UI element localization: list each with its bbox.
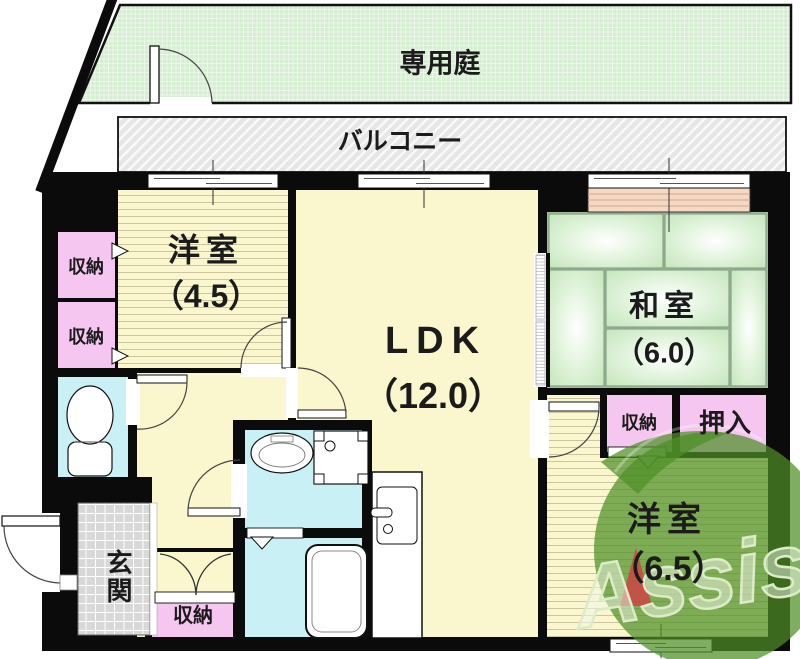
entrance-wall bbox=[58, 477, 152, 505]
washing-machine-pan bbox=[314, 431, 368, 484]
closet-upper-left-2-label: 収納 bbox=[68, 328, 104, 346]
western-room-large-size: （6.5） bbox=[610, 552, 725, 586]
western-room-small-size: （4.5） bbox=[152, 280, 261, 312]
bathtub bbox=[306, 545, 367, 638]
toilet-fixture bbox=[67, 386, 113, 476]
entrance-step bbox=[150, 503, 157, 635]
ldk-japanese-room-sliding-door bbox=[534, 253, 550, 387]
ldk-label: LDK bbox=[385, 322, 487, 360]
oshiire-label: 押入 bbox=[699, 410, 751, 436]
western-room-small-label: 洋室 bbox=[168, 234, 244, 266]
balcony-label: バルコニー bbox=[338, 130, 463, 155]
kitchen-faucet bbox=[371, 508, 392, 517]
hall-closet-door-zone bbox=[152, 552, 233, 595]
washbasin bbox=[251, 433, 313, 473]
western-room-large-label: 洋室 bbox=[627, 503, 707, 537]
garden-label: 専用庭 bbox=[400, 51, 481, 78]
japanese-room-size: （6.0） bbox=[615, 340, 713, 369]
entrance-label: 玄関 bbox=[105, 549, 131, 605]
kitchen-counter bbox=[371, 472, 422, 638]
japanese-room-label: 和室 bbox=[629, 292, 699, 322]
floor-plan: Assist 専用庭 バルコニー 洋室 （4.5） LDK （12.0） 和室 … bbox=[0, 0, 800, 659]
closet-upper-left-1-label: 収納 bbox=[68, 258, 104, 276]
closet-hallway-label: 収納 bbox=[173, 606, 213, 626]
ldk-size: （12.0） bbox=[362, 378, 504, 414]
closet-center-right-label: 収納 bbox=[621, 414, 657, 432]
